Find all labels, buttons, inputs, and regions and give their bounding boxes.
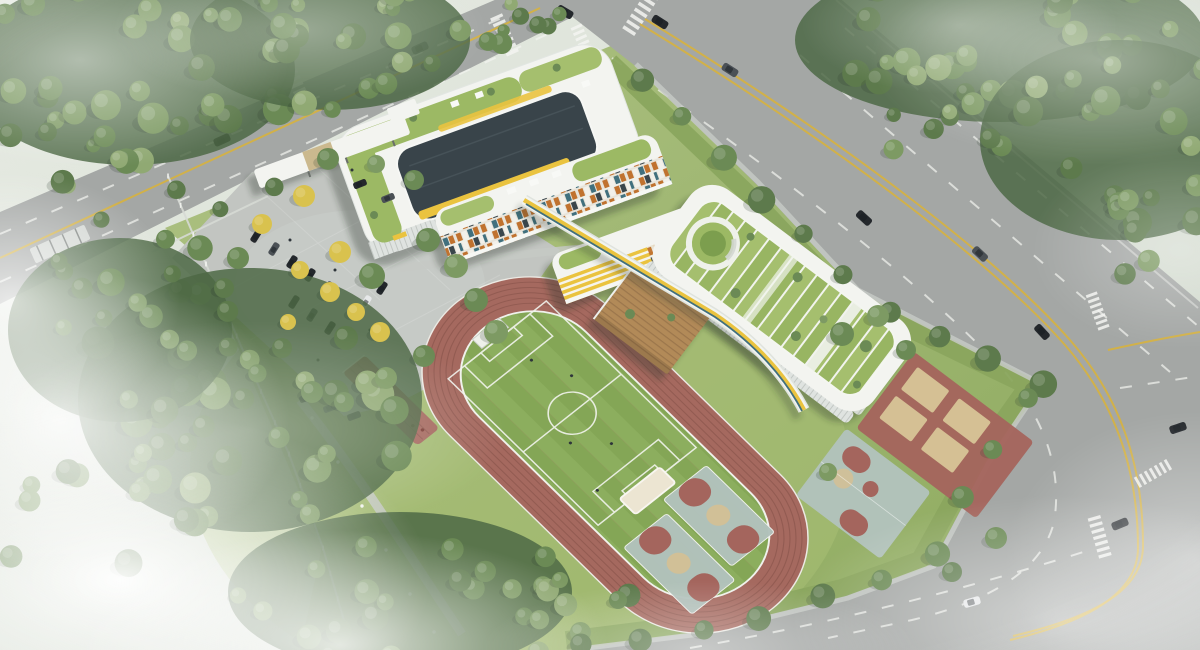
vignette <box>0 0 1200 650</box>
campus-aerial-rendering <box>0 0 1200 650</box>
scene-canvas <box>0 0 1200 650</box>
